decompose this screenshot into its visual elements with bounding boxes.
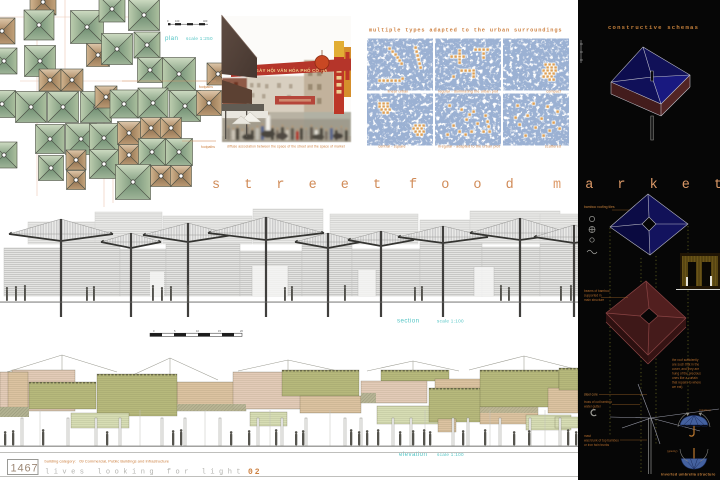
svg-text:scale 1:100: scale 1:100 [437, 319, 464, 324]
svg-text:was trunk of top bamboo: was trunk of top bamboo [584, 439, 619, 443]
svg-text:market: market [553, 178, 720, 193]
svg-text:mast: mast [584, 434, 591, 438]
svg-text:(gravity): (gravity) [667, 449, 677, 453]
svg-text:main structure: main structure [584, 298, 604, 302]
svg-text:we eat): we eat) [672, 385, 682, 389]
svg-text:truss of cut bamboo: truss of cut bamboo [584, 400, 612, 404]
svg-text:diffuse association between th: diffuse association between the space of… [227, 145, 345, 149]
svg-text:plan: plan [165, 35, 178, 42]
svg-text:footpaths: footpaths [199, 85, 213, 89]
svg-text:that repairs to where: that repairs to where [672, 381, 701, 385]
svg-text:section: section [397, 318, 420, 325]
svg-text:(rotation): (rotation) [699, 408, 711, 412]
svg-text:cover, and they are: cover, and they are [672, 367, 699, 371]
svg-text:are such that in the: are such that in the [672, 363, 699, 367]
svg-text:NGÀY HỘI VĂN HÓA PHỐ CỔ HÀ: NGÀY HỘI VĂN HÓA PHỐ CỔ HÀ [252, 68, 328, 73]
svg-text:scale 1:250: scale 1:250 [186, 36, 213, 41]
svg-text:hung of the precious: hung of the precious [672, 372, 701, 376]
svg-text:the roof sufficiently: the roof sufficiently [672, 358, 699, 362]
svg-text:1467: 1467 [11, 463, 39, 475]
svg-text:elevation: elevation [399, 451, 428, 458]
svg-text:multiple types adapted to the: multiple types adapted to the urban surr… [369, 28, 562, 34]
svg-text:food: food [409, 178, 538, 193]
svg-text:beams of bamboo: beams of bamboo [584, 289, 610, 293]
svg-text:linear urban: linear urban [388, 89, 409, 93]
svg-text:02: 02 [248, 468, 262, 477]
svg-text:ones like a curtain: ones like a curtain [672, 376, 698, 380]
svg-text:central - square: central - square [378, 144, 405, 148]
svg-text:lives looking for light: lives looking for light [45, 469, 245, 477]
svg-text:water gutter: water gutter [584, 405, 602, 409]
svg-text:street: street [212, 178, 405, 193]
svg-text:regular - dominating the urban: regular - dominating the urban plot [438, 89, 498, 93]
svg-text:400: 400 [203, 19, 208, 23]
svg-text:bamboo roofing tiles: bamboo roofing tiles [584, 205, 615, 209]
svg-text:inverted umbrella structure: inverted umbrella structure [661, 473, 716, 477]
svg-text:or iron twin trunks: or iron twin trunks [584, 443, 610, 447]
svg-text:supported in: supported in [584, 294, 602, 298]
svg-text:footpaths: footpaths [201, 145, 215, 149]
svg-text:scattered: scattered [545, 144, 561, 148]
svg-text:100: 100 [175, 19, 180, 23]
svg-text:steel core: steel core [584, 393, 598, 397]
svg-text:constructive schemas: constructive schemas [608, 24, 699, 31]
svg-text:compact: compact [546, 89, 561, 93]
svg-text:irregular - adapted to the urb: irregular - adapted to the urban plot [438, 144, 500, 148]
svg-text:building category: 09 Commer: building category: 09 Commercial, Public… [45, 459, 170, 464]
